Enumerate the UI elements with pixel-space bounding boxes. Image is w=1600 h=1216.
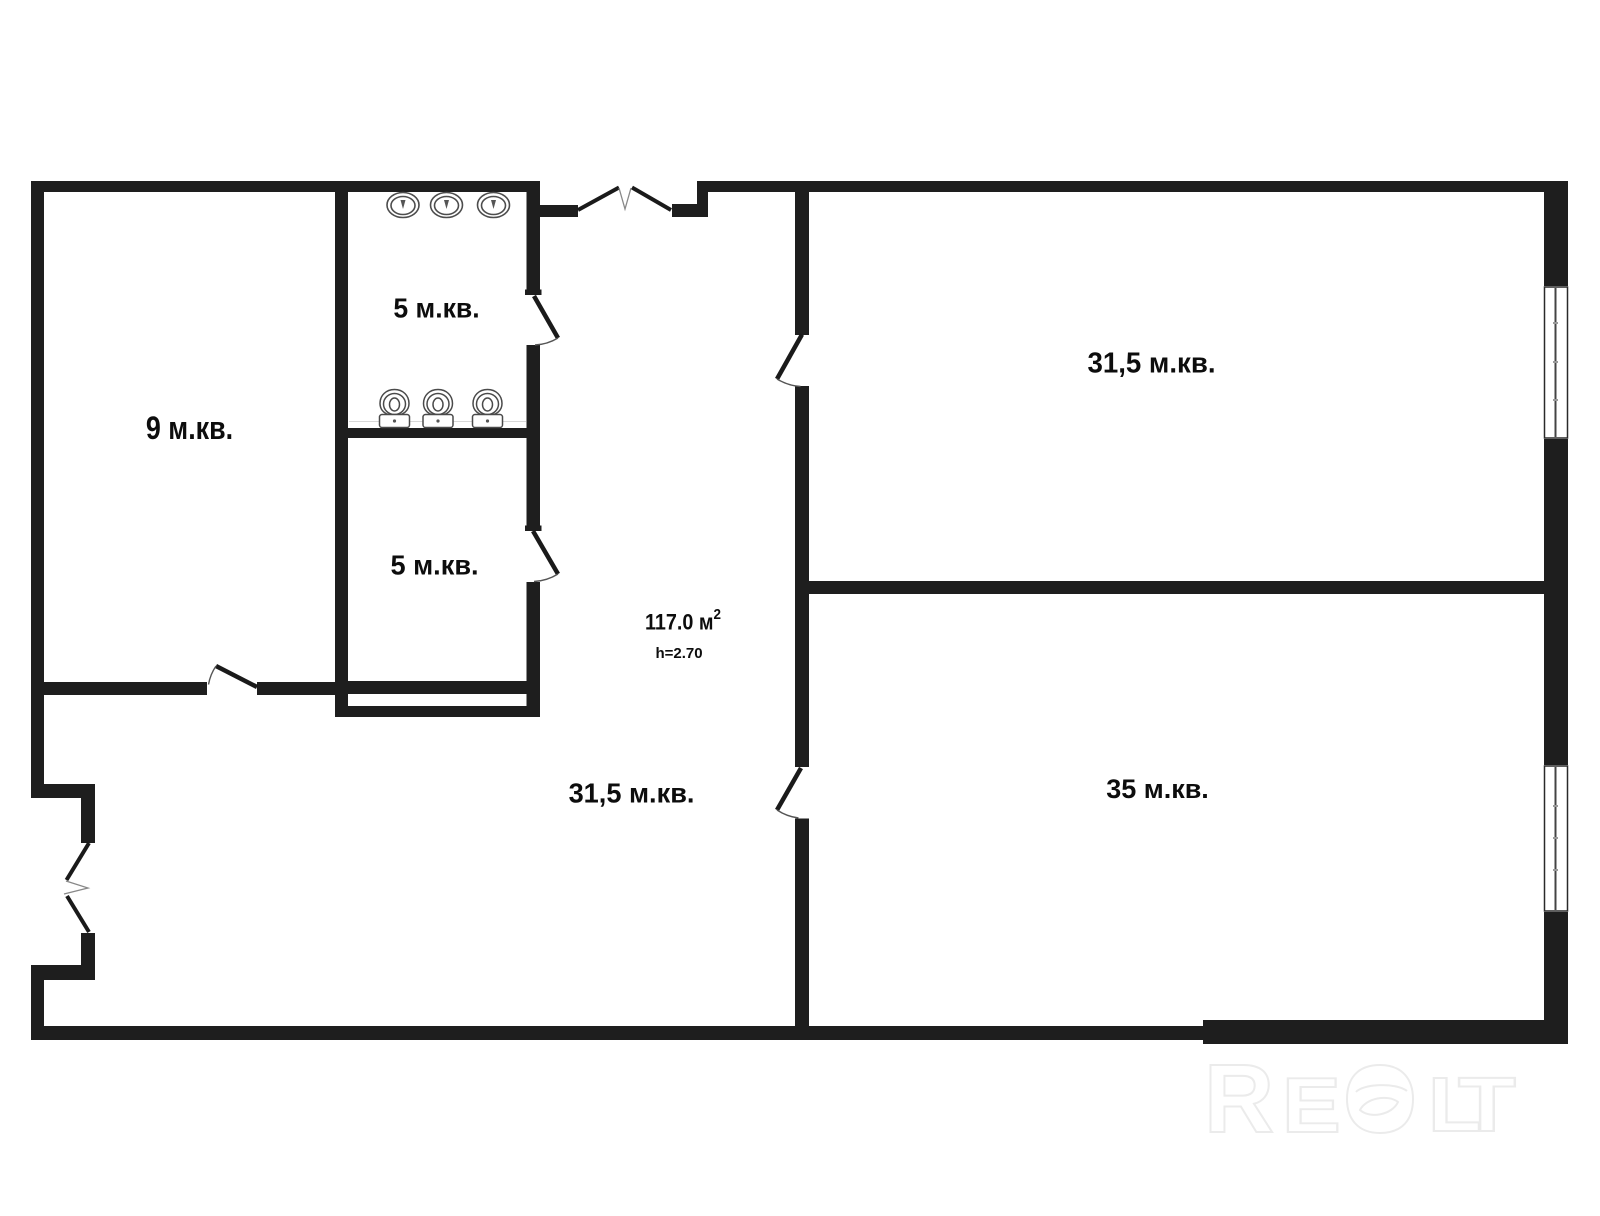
svg-text:5 м.кв.: 5 м.кв. [390, 549, 478, 580]
svg-text:31,5 м.кв.: 31,5 м.кв. [1087, 347, 1215, 378]
svg-text:9 м.кв.: 9 м.кв. [146, 411, 233, 447]
svg-text:5 м.кв.: 5 м.кв. [393, 292, 479, 324]
svg-text:R: R [1204, 1044, 1274, 1153]
svg-text:T: T [1458, 1062, 1516, 1148]
svg-text:117.0 м2: 117.0 м2 [645, 606, 721, 634]
svg-text:E: E [1282, 1062, 1341, 1149]
svg-text:35 м.кв.: 35 м.кв. [1106, 774, 1209, 804]
svg-text:31,5 м.кв.: 31,5 м.кв. [569, 777, 695, 808]
svg-text:h=2.70: h=2.70 [655, 645, 702, 662]
